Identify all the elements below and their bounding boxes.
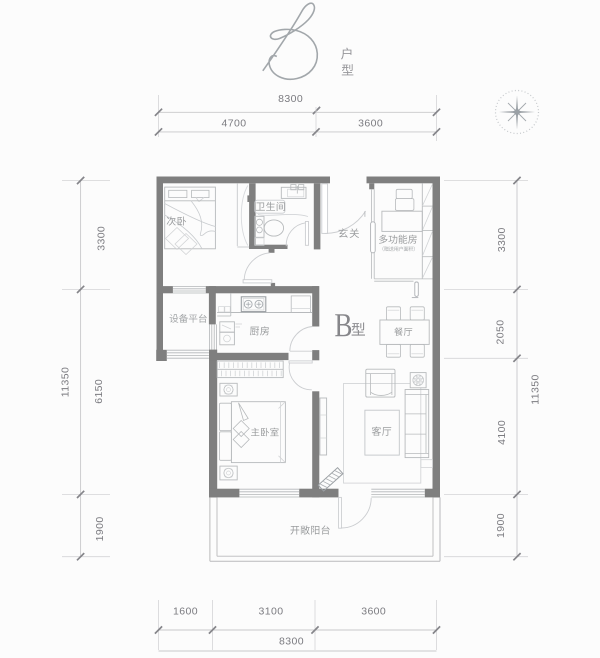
svg-text:1900: 1900 [94,516,106,541]
svg-text:1900: 1900 [495,513,507,538]
svg-text:3300: 3300 [96,226,108,251]
svg-text:8300: 8300 [278,93,303,105]
svg-text:4100: 4100 [496,420,508,445]
svg-text:8300: 8300 [279,635,304,647]
svg-text:3600: 3600 [361,605,386,617]
svg-text:3300: 3300 [496,227,508,252]
svg-text:11350: 11350 [529,374,541,404]
svg-text:4700: 4700 [222,117,247,129]
svg-text:3600: 3600 [358,117,383,129]
svg-text:1600: 1600 [173,605,198,617]
svg-text:3100: 3100 [259,605,284,617]
svg-text:6150: 6150 [93,379,105,404]
svg-text:2050: 2050 [494,320,506,345]
svg-text:11350: 11350 [59,367,71,397]
